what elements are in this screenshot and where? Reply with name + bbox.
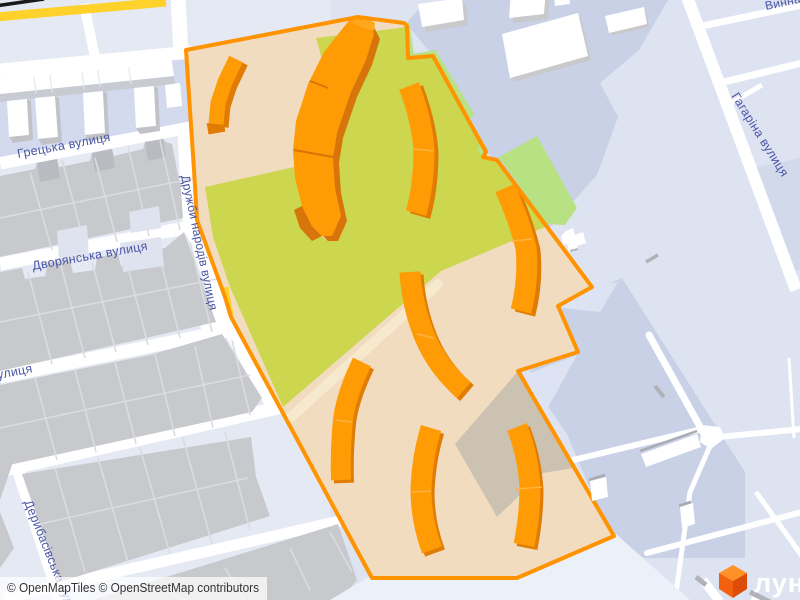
svg-text:© OpenMapTiles © OpenStreetMap: © OpenMapTiles © OpenStreetMap contribut… [7, 581, 259, 595]
svg-text:лун: лун [754, 568, 800, 598]
